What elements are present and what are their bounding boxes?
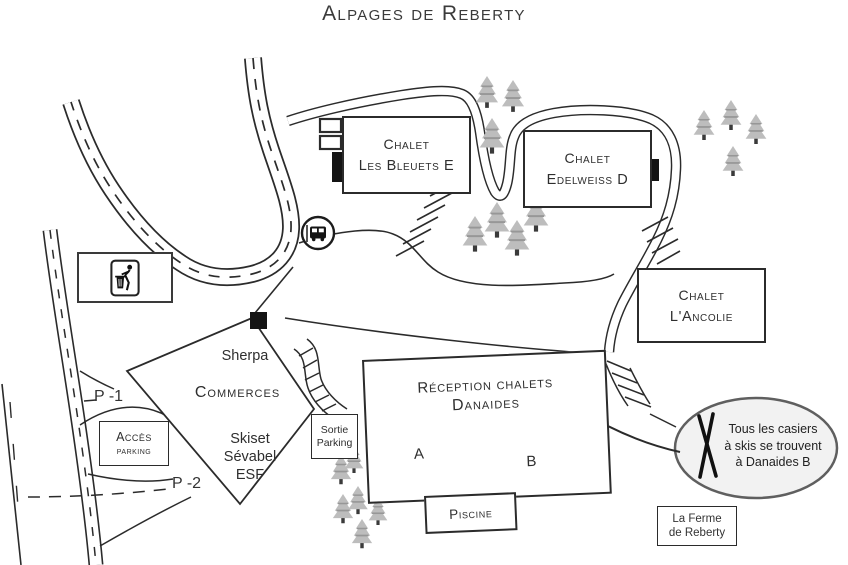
shop-labels: Skiset Sévabel ESF — [190, 430, 310, 484]
reception-unit-a: A — [414, 445, 425, 462]
ski-locker-callout-text: Tous les casiers à skis se trouvent à Da… — [712, 421, 834, 471]
sortie-parking-sign: Sortie Parking — [311, 414, 358, 459]
litter-disposal-icon — [110, 258, 140, 298]
shop-label-esf: ESF — [190, 466, 310, 484]
map-title: Alpages de Reberty — [0, 2, 848, 26]
callout-line: à skis se trouvent — [712, 438, 834, 455]
parking-level-1-label: P -1 — [94, 388, 123, 406]
main-road-surface — [71, 58, 291, 277]
acces-parking-label: Accès — [116, 430, 152, 444]
commerces-label: Commerces — [155, 384, 320, 402]
ferme-label: de Reberty — [669, 526, 725, 540]
sortie-parking-label: Parking — [317, 437, 353, 450]
bus-stop-icon — [302, 217, 334, 249]
reception-label: Réception chalets — [417, 374, 553, 397]
building-label: Chalet — [679, 287, 725, 303]
acces-parking-sign: Accès parking — [99, 421, 169, 466]
building-piscine: Piscine — [424, 492, 518, 534]
litter-disposal-sign — [77, 252, 173, 303]
building-label: Chalet — [384, 136, 430, 152]
building-label: Chalet — [565, 150, 611, 166]
reception-unit-b: B — [526, 453, 537, 470]
sortie-parking-label: Sortie — [321, 424, 348, 437]
shop-label-skiset: Skiset — [190, 430, 310, 448]
reception-label: Danaides — [452, 394, 521, 415]
resort-map: Alpages de Reberty Chalet Les Bleuets E … — [0, 0, 848, 565]
building-label: L'Ancolie — [670, 309, 733, 325]
piscine-label: Piscine — [449, 505, 493, 522]
building-label: Edelweiss D — [547, 172, 629, 188]
building-chalet-ancolie: Chalet L'Ancolie — [637, 268, 766, 343]
callout-line: Tous les casiers — [712, 421, 834, 438]
ferme-label: La Ferme — [672, 512, 721, 526]
footpath-lines — [255, 230, 614, 354]
shop-label-sevabel: Sévabel — [190, 448, 310, 466]
utility-bins — [320, 119, 341, 149]
acces-parking-label: parking — [117, 445, 152, 457]
building-reception-danaides: Réception chalets Danaides A B — [362, 350, 612, 504]
callout-line: à Danaides B — [712, 454, 834, 471]
shop-label-sherpa: Sherpa — [205, 348, 285, 364]
building-chalet-edelweiss: Chalet Edelweiss D — [523, 130, 652, 208]
building-label: Les Bleuets E — [359, 158, 455, 174]
far-left-edge-line — [2, 384, 21, 565]
building-chalet-les-bleuets: Chalet Les Bleuets E — [342, 116, 471, 194]
building-ferme-reberty: La Ferme de Reberty — [657, 506, 737, 546]
parking-level-2-label: P -2 — [172, 475, 201, 493]
